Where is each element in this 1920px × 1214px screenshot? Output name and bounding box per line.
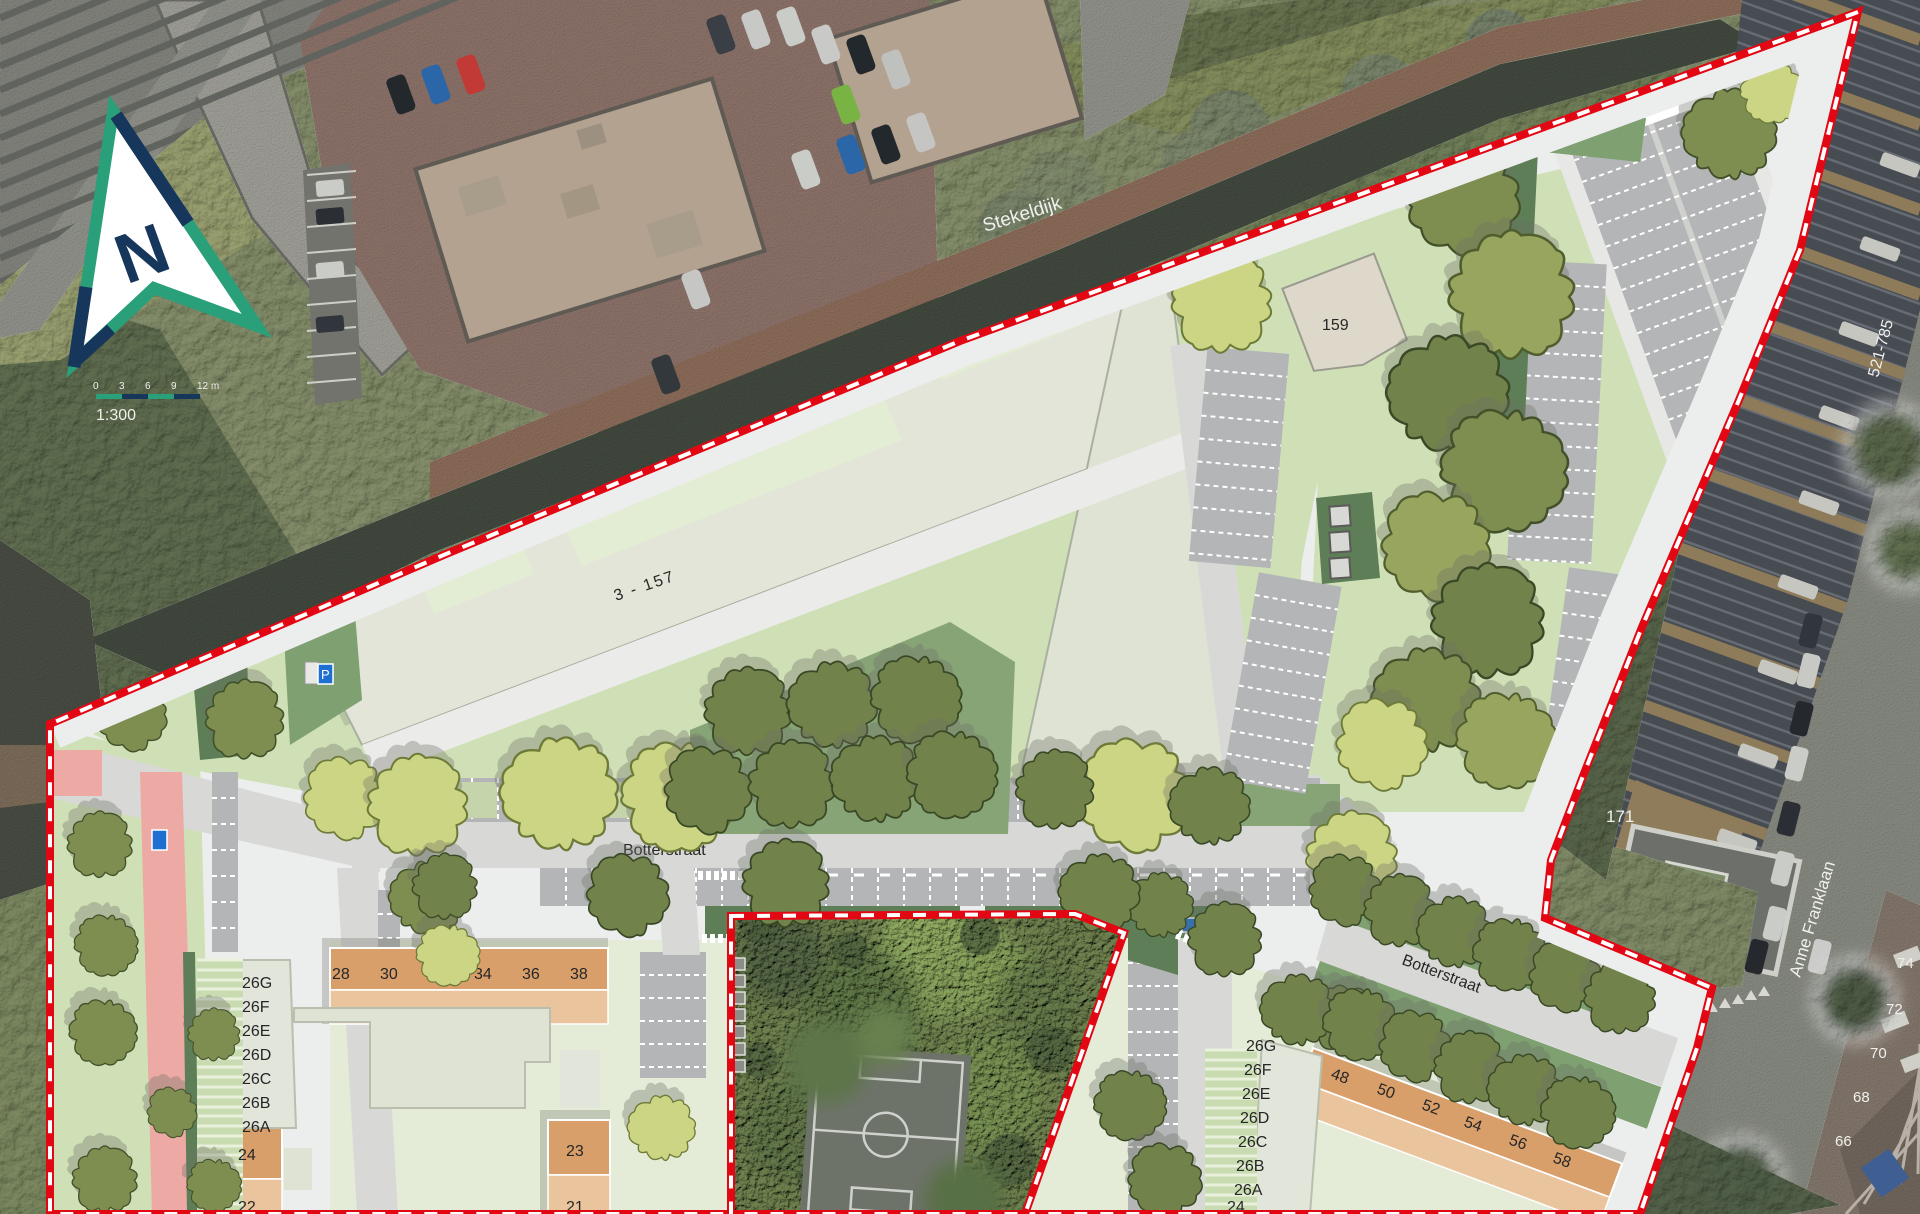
svg-text:70: 70 (1870, 1045, 1887, 1062)
svg-text:30: 30 (380, 966, 398, 983)
svg-text:74: 74 (1897, 955, 1914, 972)
svg-text:26F: 26F (242, 999, 270, 1016)
svg-text:26A: 26A (1234, 1182, 1263, 1199)
svg-text:26G: 26G (242, 975, 272, 992)
svg-text:26E: 26E (242, 1023, 270, 1040)
svg-text:P: P (321, 667, 330, 682)
svg-text:26B: 26B (1236, 1158, 1264, 1175)
svg-text:72: 72 (1886, 1001, 1903, 1018)
svg-text:26C: 26C (242, 1071, 271, 1088)
svg-text:36: 36 (522, 966, 540, 983)
svg-text:66: 66 (1835, 1133, 1852, 1150)
svg-text:26D: 26D (242, 1047, 271, 1064)
svg-text:68: 68 (1853, 1089, 1870, 1106)
svg-text:24: 24 (238, 1147, 256, 1164)
svg-text:9: 9 (171, 381, 177, 392)
svg-text:6: 6 (145, 381, 151, 392)
svg-text:159: 159 (1322, 317, 1349, 334)
svg-text:26D: 26D (1240, 1110, 1269, 1127)
svg-text:171: 171 (1606, 807, 1634, 826)
svg-text:26G: 26G (1246, 1038, 1276, 1055)
svg-text:23: 23 (566, 1143, 584, 1160)
svg-text:28: 28 (332, 966, 350, 983)
svg-text:3: 3 (119, 381, 125, 392)
svg-text:26A: 26A (242, 1119, 271, 1136)
svg-text:26C: 26C (1238, 1134, 1267, 1151)
svg-text:26F: 26F (1244, 1062, 1272, 1079)
svg-text:26B: 26B (242, 1095, 270, 1112)
svg-text:0: 0 (93, 381, 99, 392)
svg-text:12 m: 12 m (197, 381, 219, 392)
svg-text:26E: 26E (1242, 1086, 1270, 1103)
svg-text:1:300: 1:300 (96, 407, 136, 424)
svg-text:38: 38 (570, 966, 588, 983)
